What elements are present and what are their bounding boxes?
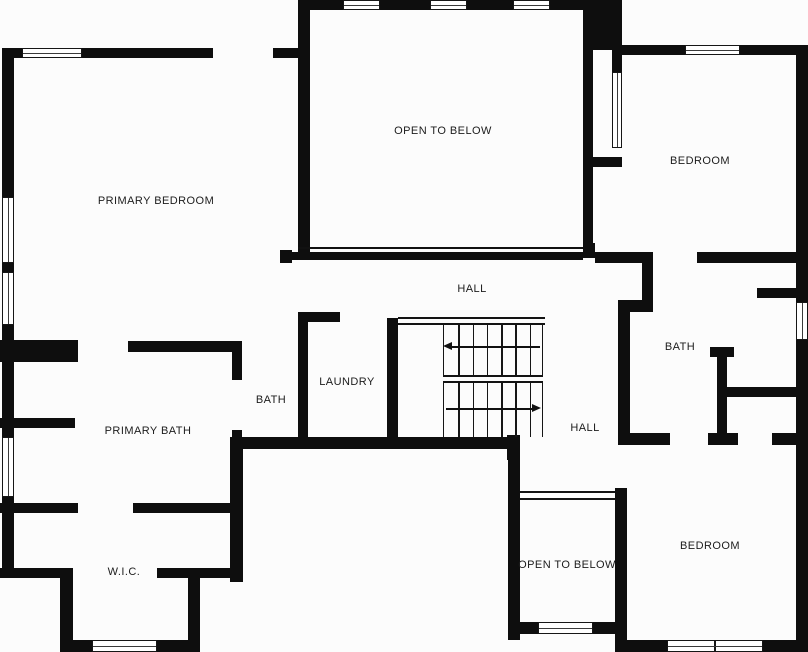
room-label-primary-bath: PRIMARY BATH (105, 425, 192, 437)
stair-flight (443, 325, 543, 375)
window (667, 640, 763, 652)
wall (0, 503, 78, 513)
wall (618, 433, 670, 445)
room-label-laundry: LAUNDRY (319, 376, 375, 388)
wall (273, 48, 300, 58)
window (430, 0, 467, 10)
stair-direction-line (452, 346, 540, 348)
wall (128, 341, 242, 352)
wall (232, 348, 242, 380)
window (612, 72, 622, 148)
window (796, 302, 808, 340)
wall (302, 312, 340, 322)
stair-divider (443, 375, 543, 383)
window (2, 272, 14, 325)
wall (292, 252, 583, 260)
railing (520, 491, 615, 500)
window-divider (714, 640, 716, 652)
window (685, 45, 740, 55)
stair-tread (515, 383, 517, 437)
wall (583, 50, 593, 258)
wall (133, 503, 233, 513)
window (2, 437, 14, 497)
room-label-open-to-below-top: OPEN TO BELOW (394, 125, 492, 137)
window (92, 640, 157, 652)
room-label-hall-top: HALL (457, 283, 486, 295)
stair-flight (443, 383, 543, 437)
floor-plan: PRIMARY BEDROOMOPEN TO BELOWBEDROOMHALLL… (0, 0, 808, 652)
room-label-bath-middle: BATH (256, 394, 286, 406)
wall (757, 288, 808, 298)
stair-tread (487, 325, 489, 375)
window (538, 622, 593, 634)
wall (722, 387, 798, 397)
stair-tread (515, 325, 517, 375)
stair-tread (458, 383, 460, 437)
window (2, 197, 14, 263)
stair-direction-line (446, 408, 532, 410)
window (513, 0, 550, 10)
stair-direction-arrow-icon (532, 404, 541, 412)
wall (508, 437, 520, 640)
room-label-open-to-below-bottom: OPEN TO BELOW (518, 559, 616, 571)
wall (583, 157, 622, 167)
wall (387, 318, 398, 437)
wall (0, 340, 78, 362)
railing (298, 247, 583, 249)
room-label-wic: W.I.C. (108, 566, 141, 578)
wall (772, 433, 798, 445)
wall (710, 347, 734, 357)
stair-tread (473, 325, 475, 375)
room-label-bath-right: BATH (665, 341, 695, 353)
wall (583, 0, 622, 50)
stair-tread (458, 325, 460, 375)
room-label-primary-bedroom: PRIMARY BEDROOM (98, 195, 214, 207)
wall (298, 312, 308, 438)
wall (280, 250, 292, 263)
wall (0, 568, 63, 578)
wall (618, 300, 630, 442)
stair-tread (473, 383, 475, 437)
window (22, 48, 82, 58)
wall (796, 45, 808, 652)
wall (232, 437, 518, 449)
stair-tread (530, 383, 532, 437)
wall (230, 437, 243, 582)
window (343, 0, 380, 10)
room-label-hall-right: HALL (570, 422, 599, 434)
room-label-bedroom-bottom-right: BEDROOM (680, 540, 740, 552)
wall (298, 0, 310, 258)
railing (398, 317, 545, 325)
wall (697, 252, 808, 263)
stair-tread (501, 383, 503, 437)
room-label-bedroom-top-right: BEDROOM (670, 155, 730, 167)
stair-tread (487, 383, 489, 437)
wall (188, 578, 200, 652)
stair-direction-arrow-icon (443, 342, 452, 350)
wall (0, 418, 75, 428)
stair-tread (501, 325, 503, 375)
stair-tread (530, 325, 532, 375)
